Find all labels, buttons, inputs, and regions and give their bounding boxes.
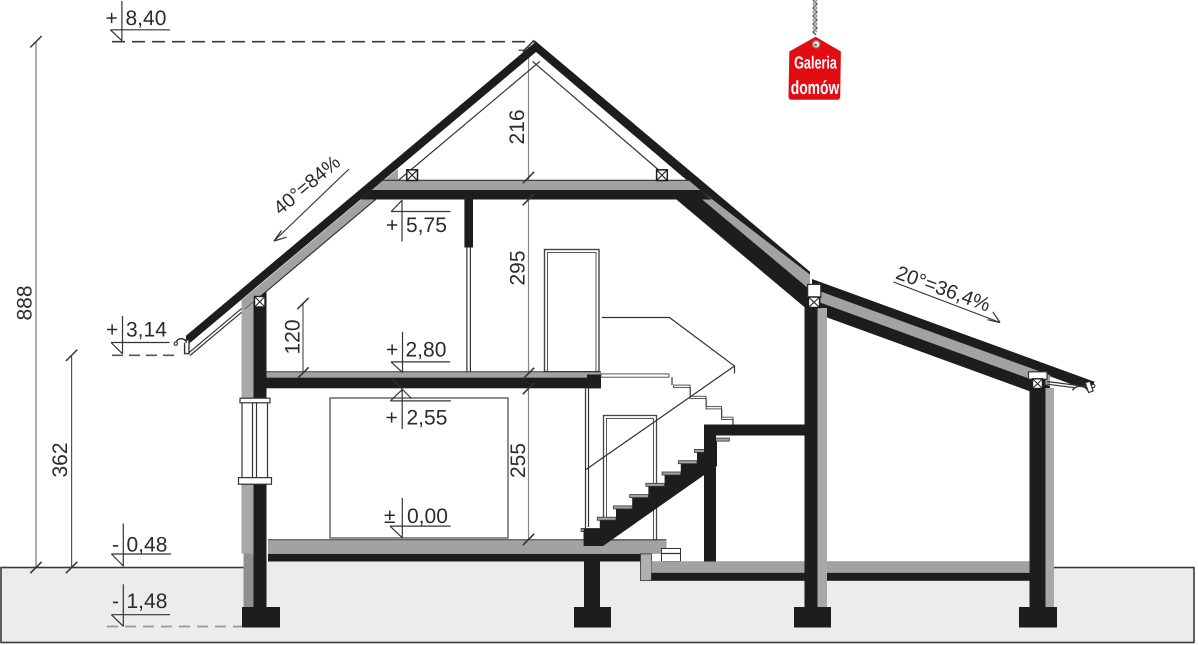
svg-text:0,48: 0,48 xyxy=(127,534,168,557)
svg-text:2,80: 2,80 xyxy=(406,339,447,362)
svg-text:+: + xyxy=(106,7,118,30)
svg-text:295: 295 xyxy=(507,250,530,285)
svg-text:+: + xyxy=(106,319,118,342)
svg-text:5,75: 5,75 xyxy=(406,214,447,237)
svg-text:+: + xyxy=(386,339,398,362)
svg-text:-: - xyxy=(112,590,119,613)
svg-text:+: + xyxy=(386,214,398,237)
svg-text:-: - xyxy=(112,534,119,557)
svg-text:±: ± xyxy=(384,505,396,528)
svg-text:362: 362 xyxy=(49,442,72,477)
svg-text:3,14: 3,14 xyxy=(126,319,167,342)
svg-text:120: 120 xyxy=(282,319,305,354)
svg-text:domów: domów xyxy=(791,78,840,99)
svg-text:255: 255 xyxy=(507,443,530,478)
svg-text:216: 216 xyxy=(506,109,529,144)
svg-text:2,55: 2,55 xyxy=(407,407,448,430)
svg-text:+: + xyxy=(386,407,398,430)
svg-text:888: 888 xyxy=(14,285,37,320)
svg-text:0,00: 0,00 xyxy=(407,505,448,528)
svg-text:8,40: 8,40 xyxy=(126,7,167,30)
svg-text:1,48: 1,48 xyxy=(127,590,168,613)
svg-text:Galeria: Galeria xyxy=(794,53,837,73)
